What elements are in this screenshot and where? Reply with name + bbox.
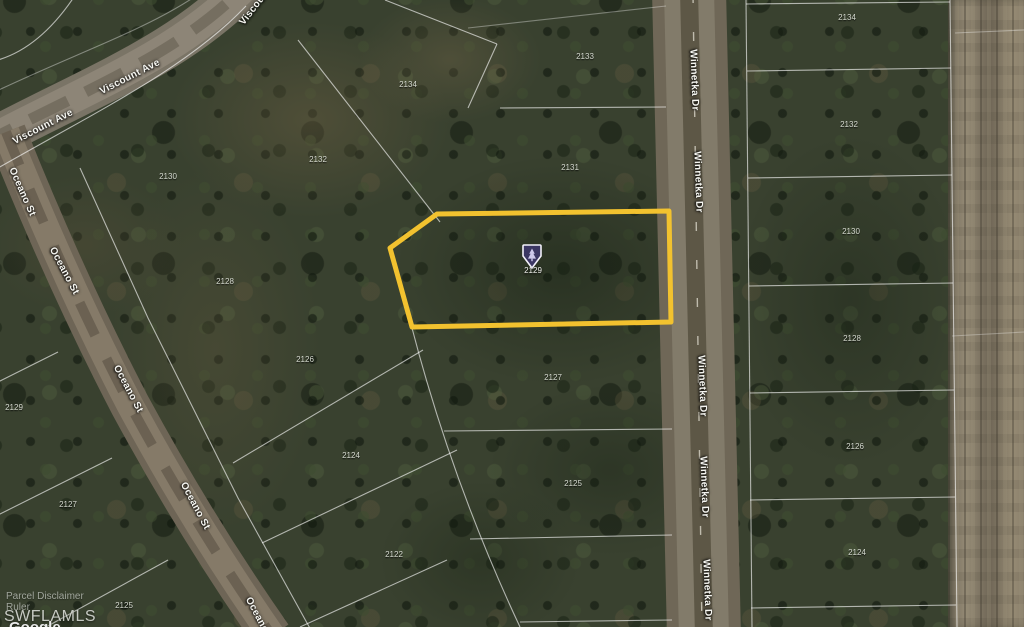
map-canvas[interactable]: Viscount AveViscount AveViscount AveOcea… [0,0,1024,627]
marker-parcel-number: 2129 [516,266,550,275]
map-overlay [0,0,1024,627]
viscount-ave-road [0,0,255,148]
winnetka-dr-road [689,0,704,627]
parcel-boundary-lines [0,0,1024,627]
oceano-st-road [6,132,272,627]
